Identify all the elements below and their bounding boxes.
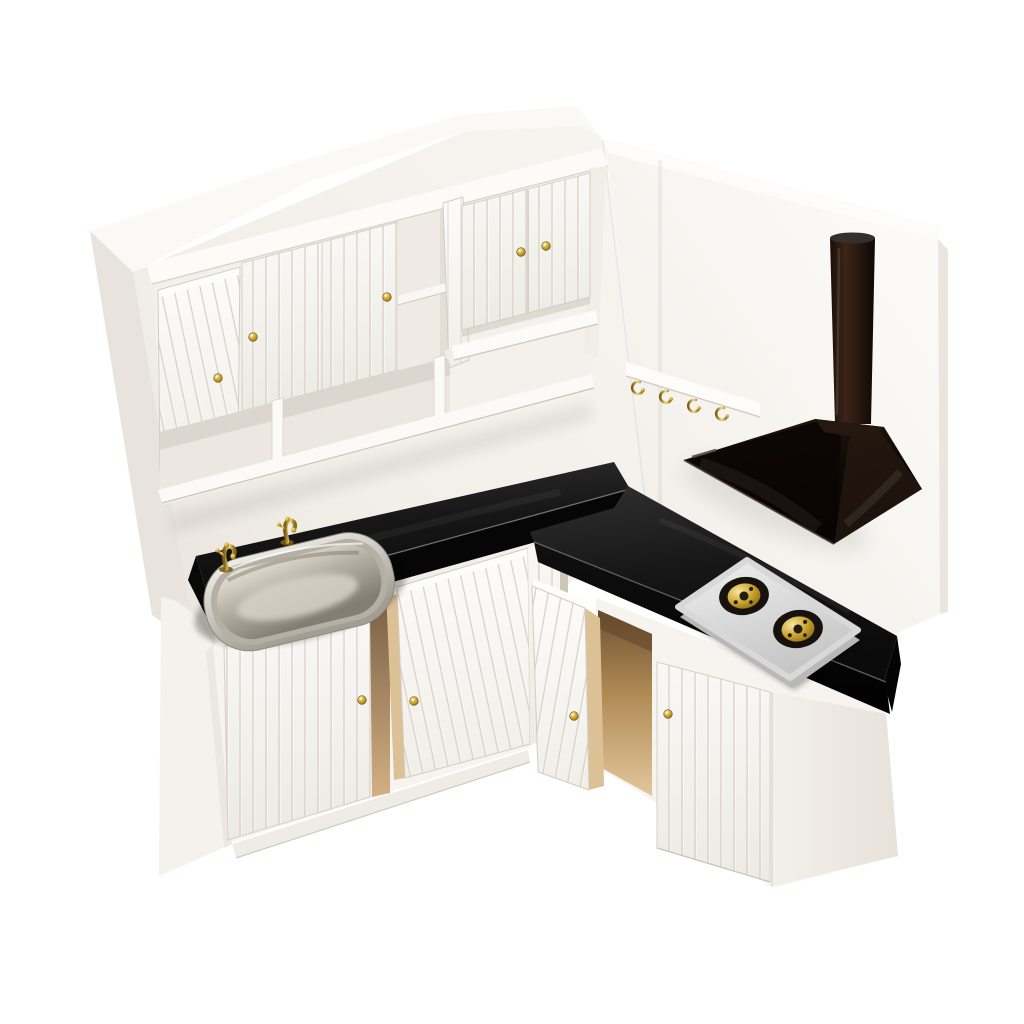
brass-knob	[410, 697, 419, 706]
right-base-door-open	[532, 579, 604, 790]
upper-door-c	[322, 222, 398, 390]
brass-knob	[570, 712, 579, 721]
kitchen-set-illustration	[0, 0, 1024, 1024]
right-base-door-closed	[657, 662, 770, 882]
product-photo	[0, 0, 1024, 1024]
left-base-door-gap	[370, 605, 390, 797]
upper-open-gap	[398, 208, 450, 376]
brass-knob	[249, 333, 258, 342]
brass-knob	[542, 242, 551, 251]
hood-chimney	[830, 233, 875, 425]
brass-knob	[664, 710, 673, 719]
brass-knob	[358, 696, 367, 705]
brass-knob	[517, 248, 526, 257]
brass-knob	[383, 293, 392, 302]
upper-door-b	[242, 242, 322, 411]
brass-knob	[214, 374, 223, 383]
right-base-side-face	[772, 692, 898, 886]
